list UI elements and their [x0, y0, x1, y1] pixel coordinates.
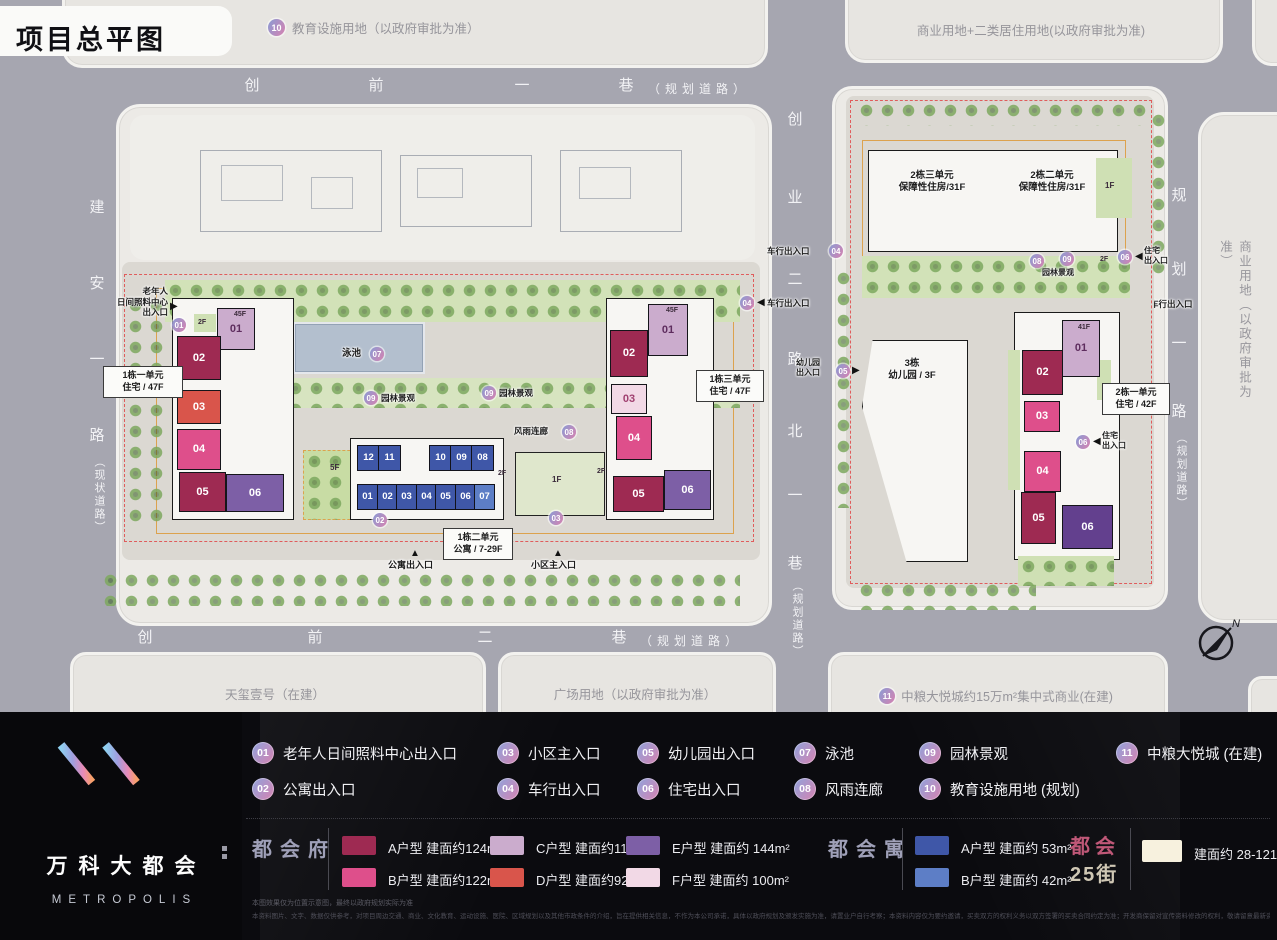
label-line: 2栋二单元	[1000, 170, 1104, 182]
commercial-residential-label: 商业用地+二类居住用地(以政府审批为准)	[855, 20, 1207, 39]
tree-row-south	[856, 580, 1036, 610]
residential-exit-label: 住宅 出入口	[1144, 246, 1168, 266]
legend-item: 05幼儿园出入口	[637, 740, 755, 766]
unit-number: 05	[440, 492, 451, 502]
legend-badge: 09	[919, 742, 941, 764]
east-commercial-label: 商业用地（以政府审批为准）	[1216, 240, 1254, 420]
road-east-char: 规	[1170, 188, 1188, 203]
unit-number: 04	[421, 492, 432, 502]
badge-06: 06	[1076, 435, 1090, 449]
legend-badge: 04	[497, 778, 519, 800]
building-unit: 03	[611, 384, 647, 414]
type-swatch-e	[626, 836, 660, 855]
legend-label: 风雨连廊	[825, 779, 883, 800]
road-west-char: 一	[88, 352, 106, 367]
road-mid-char: 北	[786, 424, 804, 439]
legend-label: 老年人日间照料中心出入口	[283, 743, 457, 764]
tower2-unit1-label: 2栋一单元 住宅 / 42F	[1102, 383, 1170, 415]
type-swatch-street	[1142, 840, 1182, 862]
type-swatch-c	[490, 836, 524, 855]
building-unit: 05	[179, 472, 226, 512]
badge-09: 09	[1060, 252, 1074, 266]
badge-08: 08	[562, 425, 576, 439]
legend-label: 教育设施用地 (规划)	[950, 779, 1080, 800]
legend-badge: 05	[637, 742, 659, 764]
legend-label: 车行出入口	[528, 779, 601, 800]
unit-number: 11	[384, 453, 394, 463]
unit-number: 01	[662, 325, 674, 336]
label-line: 住宅 / 47F	[709, 386, 750, 398]
type-swatch-yu-b	[915, 868, 949, 887]
legend-badge: 11	[1116, 742, 1138, 764]
legend-item: 03小区主入口	[497, 740, 601, 766]
legend-item: 01老年人日间照料中心出入口	[252, 740, 457, 766]
unit-number: 05	[632, 489, 644, 500]
section-title-street-1: 都会	[1070, 830, 1120, 859]
pool-label: 泳池	[342, 348, 361, 360]
unit-number: 03	[193, 402, 205, 413]
unit-number: 01	[362, 492, 373, 502]
entrance-arrow-icon: ▲	[553, 549, 563, 559]
legend-item: 10教育设施用地 (规划)	[919, 776, 1080, 802]
badge-09: 09	[482, 386, 496, 400]
corridor-label: 风雨连廊	[514, 426, 548, 437]
elder-line: 老年人	[84, 286, 168, 297]
legend-item: 08风雨连廊	[794, 776, 883, 802]
road-north-char: 一	[513, 78, 531, 93]
badge-06: 06	[1118, 250, 1132, 264]
legend-item: 09园林景观	[919, 740, 1008, 766]
apartment-unit: 07	[474, 484, 495, 510]
type-label: 建面约 28-121m²	[1194, 844, 1277, 863]
legend-item: 02公寓出入口	[252, 776, 356, 802]
apartment-unit: 10	[429, 445, 452, 471]
road-south-suffix: （规划道路）	[640, 632, 742, 649]
tower1-unit2-label: 1栋二单元 公寓 / 7-29F	[443, 528, 513, 560]
building-unit: 02	[610, 330, 648, 377]
road-west-char: 建	[88, 200, 106, 215]
entrance-arrow-icon: ◀	[1093, 437, 1101, 447]
unit-number: 02	[193, 353, 205, 364]
main-entrance-label: 小区主入口	[531, 560, 576, 571]
legend-badge: 10	[919, 778, 941, 800]
legend-item: 06住宅出入口	[637, 776, 741, 802]
road-north-suffix: （规划道路）	[648, 80, 750, 97]
label-line: 保障性住房/31F	[1000, 182, 1104, 194]
road-east-char: 路	[1170, 404, 1188, 419]
label-line: 住宅 / 42F	[1115, 399, 1156, 411]
road-mid-char: 二	[786, 272, 804, 287]
tower1-unit3-label: 1栋三单元 住宅 / 47F	[696, 370, 764, 402]
legend-badge: 01	[252, 742, 274, 764]
right-mid-garden	[862, 256, 1130, 298]
affordable-housing-building	[868, 150, 1118, 252]
label-line: 2栋三单元	[880, 170, 984, 182]
floor-label: 2F	[198, 319, 206, 326]
type-label: E户型 建面约 144m²	[672, 838, 790, 857]
floor-label: 45F	[666, 307, 678, 314]
unit-number: 02	[623, 348, 635, 359]
road-west-char: 路	[88, 428, 106, 443]
unit-number: 06	[460, 492, 471, 502]
floorplan-sketch	[400, 155, 532, 227]
unit-number: 06	[1081, 522, 1093, 533]
road-mid-char: 一	[786, 488, 804, 503]
badge-10: 10	[268, 19, 285, 36]
floor-label: 5F	[330, 464, 339, 472]
road-south-char: 创	[136, 630, 154, 645]
badge-03: 03	[549, 511, 563, 525]
legend-label: 小区主入口	[528, 743, 601, 764]
building-unit: 05	[1021, 492, 1056, 544]
road-mid-char: 业	[786, 190, 804, 205]
floor-label: 1F	[1105, 182, 1114, 190]
logo-trademark	[222, 846, 227, 851]
badge-11: 11	[879, 688, 895, 704]
logo-en-text: METROPOLIS	[0, 894, 242, 906]
badge-01: 01	[172, 318, 186, 332]
label-line: 出入口	[770, 368, 820, 378]
tree-row-south	[100, 570, 740, 606]
road-south-char: 巷	[610, 630, 628, 645]
road-mid-char: 创	[786, 112, 804, 127]
badge-09: 09	[364, 391, 378, 405]
elder-center-entrance-label: 老年人 日间照料中心 出入口	[84, 286, 168, 318]
residential-exit-label: 住宅 出入口	[1102, 431, 1126, 451]
type-swatch-yu-a	[915, 836, 949, 855]
garden-label: 园林景观	[381, 393, 415, 404]
apartment-unit: 08	[471, 445, 494, 471]
unit-number: 12	[363, 453, 374, 463]
floor-label: 41F	[1078, 324, 1090, 331]
logo-cn-text: 万科大都会	[0, 850, 242, 880]
legend-badge: 06	[637, 778, 659, 800]
apartment-unit: 09	[450, 445, 473, 471]
tree-col-west	[125, 295, 163, 525]
building-unit: 04	[616, 416, 652, 460]
joy-city-label: 11 中粮大悦城约15万m²集中式商业(在建)	[836, 686, 1156, 705]
floor-label: 2F	[1100, 256, 1108, 263]
bottom-mid-label: 广场用地（以政府审批为准）	[505, 684, 765, 703]
site-plan-page: 项目总平图 10 教育设施用地（以政府审批为准） 商业用地+二类居住用地(以政府…	[0, 0, 1277, 940]
parcel-corner-ne	[1252, 0, 1277, 66]
badge-04: 04	[829, 244, 843, 258]
unit-number: 01	[1075, 343, 1087, 354]
entrance-arrow-icon: ▶	[170, 302, 178, 312]
metropolis-logo-icon	[52, 738, 190, 810]
section-title-yu: 都会寓	[828, 833, 912, 862]
badge-07: 07	[370, 347, 384, 361]
elder-line: 日间照料中心	[84, 297, 168, 308]
tower1-unit1-label: 1栋一单元 住宅 / 47F	[103, 366, 183, 398]
education-parcel-text: 教育设施用地（以政府审批为准）	[292, 18, 480, 37]
legend-label: 中粮大悦城 (在建)	[1147, 743, 1262, 764]
unit-number: 04	[1036, 466, 1048, 477]
elder-line: 出入口	[84, 307, 168, 318]
floorplan-sketch	[560, 150, 682, 232]
road-south-char: 前	[306, 630, 324, 645]
type-label: A户型 建面约 53m²	[961, 838, 1072, 857]
legend-badge: 03	[497, 742, 519, 764]
legend-label: 泳池	[825, 743, 854, 764]
entrance-arrow-icon: ◀	[1135, 252, 1143, 262]
building-unit: 04	[177, 429, 221, 470]
apartment-unit: 06	[455, 484, 476, 510]
tree-row-north	[856, 100, 1146, 126]
unit-number: 08	[477, 453, 488, 463]
road-north-char: 创	[243, 78, 261, 93]
building-unit: 02	[177, 336, 221, 380]
legend-label: 住宅出入口	[668, 779, 741, 800]
joy-city-text: 中粮大悦城约15万m²集中式商业(在建)	[901, 686, 1113, 705]
vehicle-entrance-label: 车行出入口	[1150, 299, 1193, 310]
podium-1f	[515, 452, 605, 516]
legend-badge: 07	[794, 742, 816, 764]
badge-08: 08	[1030, 254, 1044, 268]
unit-number: 05	[1032, 513, 1044, 524]
unit-number: 05	[196, 487, 208, 498]
floorplan-sketch	[200, 150, 382, 232]
legend-label: 幼儿园出入口	[668, 743, 755, 764]
type-swatch-d	[490, 868, 524, 887]
road-south-char: 二	[476, 630, 494, 645]
floor-label: 2F	[597, 468, 605, 475]
label-line: 住宅 / 47F	[122, 382, 163, 394]
label-line: 住宅	[1102, 431, 1126, 441]
divider	[246, 818, 1270, 819]
affordable-unit3-label: 2栋三单元 保障性住房/31F	[880, 170, 984, 194]
road-mid-char: 巷	[786, 556, 804, 571]
badge-05: 05	[836, 364, 850, 378]
label-line: 保障性住房/31F	[880, 182, 984, 194]
apartment-unit: 05	[435, 484, 456, 510]
legend-badge: 08	[794, 778, 816, 800]
road-east-suffix: （规划道路）	[1173, 432, 1189, 562]
legend-item: 11中粮大悦城 (在建)	[1116, 740, 1262, 766]
legend-item: 07泳池	[794, 740, 854, 766]
logo-trademark	[222, 854, 227, 859]
type-label: F户型 建面约 100m²	[672, 870, 789, 889]
page-title: 项目总平图	[16, 18, 166, 57]
disclaimer-line-1: 本图效果仅为位置示意图，最终以政府规划实际为准	[252, 898, 1262, 908]
type-swatch-b	[342, 868, 376, 887]
logo-block: 万科大都会 METROPOLIS	[0, 712, 242, 940]
label-line: 1栋二单元	[457, 532, 498, 544]
type-label: A户型 建面约124m²	[388, 838, 502, 857]
building-unit: 03	[1024, 401, 1060, 432]
divider	[902, 828, 903, 890]
apartment-exit-label: 公寓出入口	[388, 560, 433, 571]
apartment-unit: 02	[377, 484, 398, 510]
compass-north-label: N	[1232, 618, 1240, 630]
section-title-street-2: 25街	[1070, 858, 1118, 887]
legend-item: 04车行出入口	[497, 776, 601, 802]
vehicle-entrance-label: 车行出入口	[767, 246, 810, 257]
apartment-unit: 11	[378, 445, 401, 471]
apartment-unit: 12	[357, 445, 380, 471]
kindergarten-exit-label: 幼儿园 出入口	[770, 358, 820, 378]
building-unit: 05	[613, 476, 664, 512]
divider	[328, 828, 329, 890]
legend-label: 公寓出入口	[283, 779, 356, 800]
unit-number: 03	[1036, 411, 1048, 422]
unit-number: 04	[628, 433, 640, 444]
apartment-unit: 03	[396, 484, 417, 510]
compass-icon: N	[1190, 614, 1244, 668]
label-line: 公寓 / 7-29F	[453, 544, 502, 556]
entrance-arrow-icon: ◀	[757, 298, 765, 308]
road-east-char: 划	[1170, 262, 1188, 277]
divider	[1130, 828, 1131, 890]
legend-label: 园林景观	[950, 743, 1008, 764]
building-unit: 03	[177, 390, 221, 424]
bottom-left-label: 天玺壹号（在建）	[165, 684, 385, 703]
entrance-arrow-icon: ▶	[852, 366, 860, 376]
label-line: 3栋	[870, 358, 954, 370]
type-swatch-a	[342, 836, 376, 855]
floor-label: 1F	[552, 476, 561, 484]
building-unit: 06	[1062, 505, 1113, 549]
unit-number: 03	[623, 394, 635, 405]
label-line: 幼儿园 / 3F	[870, 370, 954, 382]
label-line: 2栋一单元	[1115, 387, 1156, 399]
label-line: 1栋一单元	[122, 370, 163, 382]
road-east-char: 一	[1170, 336, 1188, 351]
building-unit: 06	[664, 470, 711, 510]
unit-number: 04	[193, 444, 205, 455]
road-north-char: 巷	[617, 78, 635, 93]
floor-label: 45F	[234, 311, 246, 318]
label-line: 出入口	[1144, 256, 1168, 266]
education-parcel-label: 10 教育设施用地（以政府审批为准）	[268, 18, 480, 37]
unit-number: 10	[435, 453, 446, 463]
tree-col	[833, 268, 851, 508]
road-north-char: 前	[367, 78, 385, 93]
badge-02: 02	[373, 513, 387, 527]
label-line: 幼儿园	[770, 358, 820, 368]
unit-number: 09	[456, 453, 467, 463]
garden-label: 园林景观	[499, 388, 533, 399]
affordable-unit2-label: 2栋二单元 保障性住房/31F	[1000, 170, 1104, 194]
entrance-arrow-icon: ▲	[410, 549, 420, 559]
unit-number: 03	[401, 492, 412, 502]
road-west-suffix: （现状道路）	[91, 456, 107, 566]
unit-number: 06	[249, 488, 261, 499]
unit-number: 02	[1036, 367, 1048, 378]
building-unit: 04	[1024, 451, 1061, 492]
apartment-unit: 01	[357, 484, 378, 510]
label-line: 1栋三单元	[709, 374, 750, 386]
disclaimer-line-2: 本资料图片、文字、数据仅供参考，对项目周边交通、商业、文化教育、运动设施、医院、…	[252, 910, 1270, 920]
apartment-unit: 04	[416, 484, 437, 510]
badge-04: 04	[740, 296, 754, 310]
building-unit: 06	[226, 474, 284, 512]
unit-number: 06	[681, 485, 693, 496]
garden-label: 园林景观	[1042, 268, 1074, 278]
type-label: B户型 建面约 42m²	[961, 870, 1072, 889]
road-mid-suffix: （规划道路）	[789, 580, 805, 700]
type-swatch-f	[626, 868, 660, 887]
lawn-strip	[1008, 350, 1020, 490]
vehicle-entrance-label: 车行出入口	[767, 298, 810, 309]
label-line: 出入口	[1102, 441, 1126, 451]
unit-number: 01	[230, 324, 242, 335]
building-unit: 02	[1022, 350, 1063, 395]
unit-number: 07	[479, 492, 490, 502]
unit-number: 02	[382, 492, 393, 502]
type-label: B户型 建面约122m²	[388, 870, 502, 889]
legend-badge: 02	[252, 778, 274, 800]
label-line: 住宅	[1144, 246, 1168, 256]
section-title-fu: 都会府	[252, 833, 336, 862]
kindergarten-label: 3栋 幼儿园 / 3F	[870, 358, 954, 382]
floor-label: 2F	[498, 470, 506, 477]
